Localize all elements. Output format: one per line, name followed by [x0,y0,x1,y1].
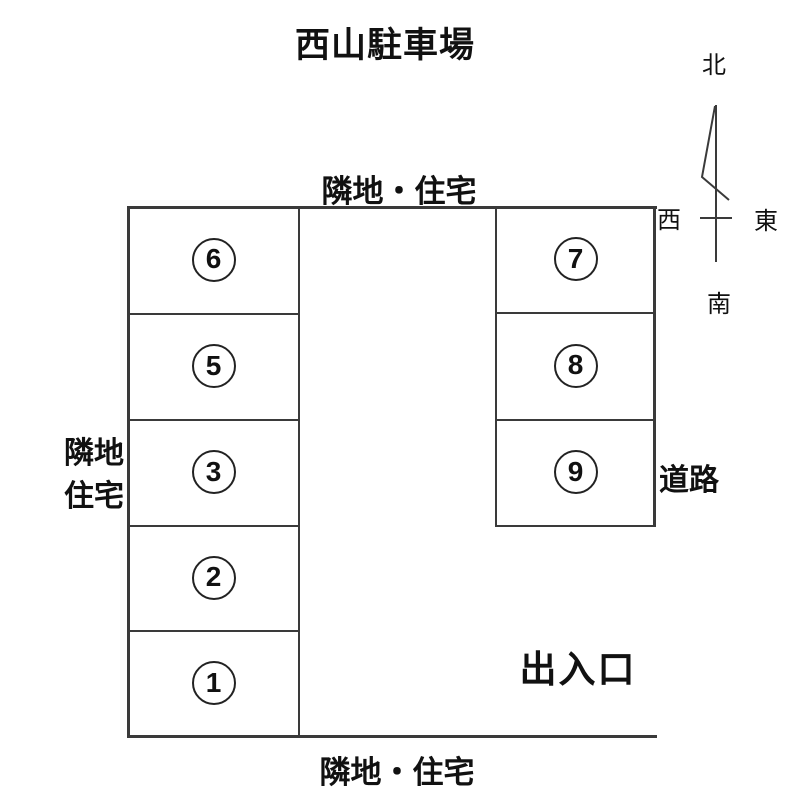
page-title: 西山駐車場 [295,17,475,68]
stall-number-5: 5 [192,344,236,388]
label-road: 道路 [659,455,719,499]
stall-cell-2: 2 [127,525,300,630]
stall-number-8: 8 [554,344,598,388]
stall-number-1: 1 [192,661,236,705]
label-adjacent-left-line2: 住宅 [40,475,124,518]
stall-number-3: 3 [192,450,236,494]
compass-west-label: 西 [657,207,681,234]
label-adjacent-top: 隣地・住宅 [322,166,477,211]
stall-divider-line [495,525,656,527]
compass-needle-icon [700,105,732,262]
stall-cell-5: 5 [127,313,300,419]
compass-east-label: 東 [754,208,778,235]
stall-cell-9: 9 [495,419,656,525]
stall-cell-1: 1 [127,630,300,736]
label-entrance: 出入口 [520,639,637,693]
label-adjacent-left-line1: 隣地 [40,432,124,475]
stall-number-2: 2 [192,556,236,600]
stall-number-7: 7 [554,237,598,281]
stall-cell-3: 3 [127,419,300,525]
stall-cell-6: 6 [127,206,300,313]
compass-south-label: 南 [707,291,731,318]
label-adjacent-left: 隣地 住宅 [40,432,124,518]
compass: 北 西 東 南 [645,40,790,320]
stall-number-6: 6 [192,238,236,282]
stall-cell-7: 7 [495,206,656,312]
parking-lot-diagram: 西山駐車場 北 西 東 南 6 5 3 2 1 7 [0,0,805,789]
label-adjacent-bottom: 隣地・住宅 [320,747,475,789]
stall-cell-8: 8 [495,312,656,419]
compass-north-label: 北 [702,52,726,79]
stall-number-9: 9 [554,450,598,494]
